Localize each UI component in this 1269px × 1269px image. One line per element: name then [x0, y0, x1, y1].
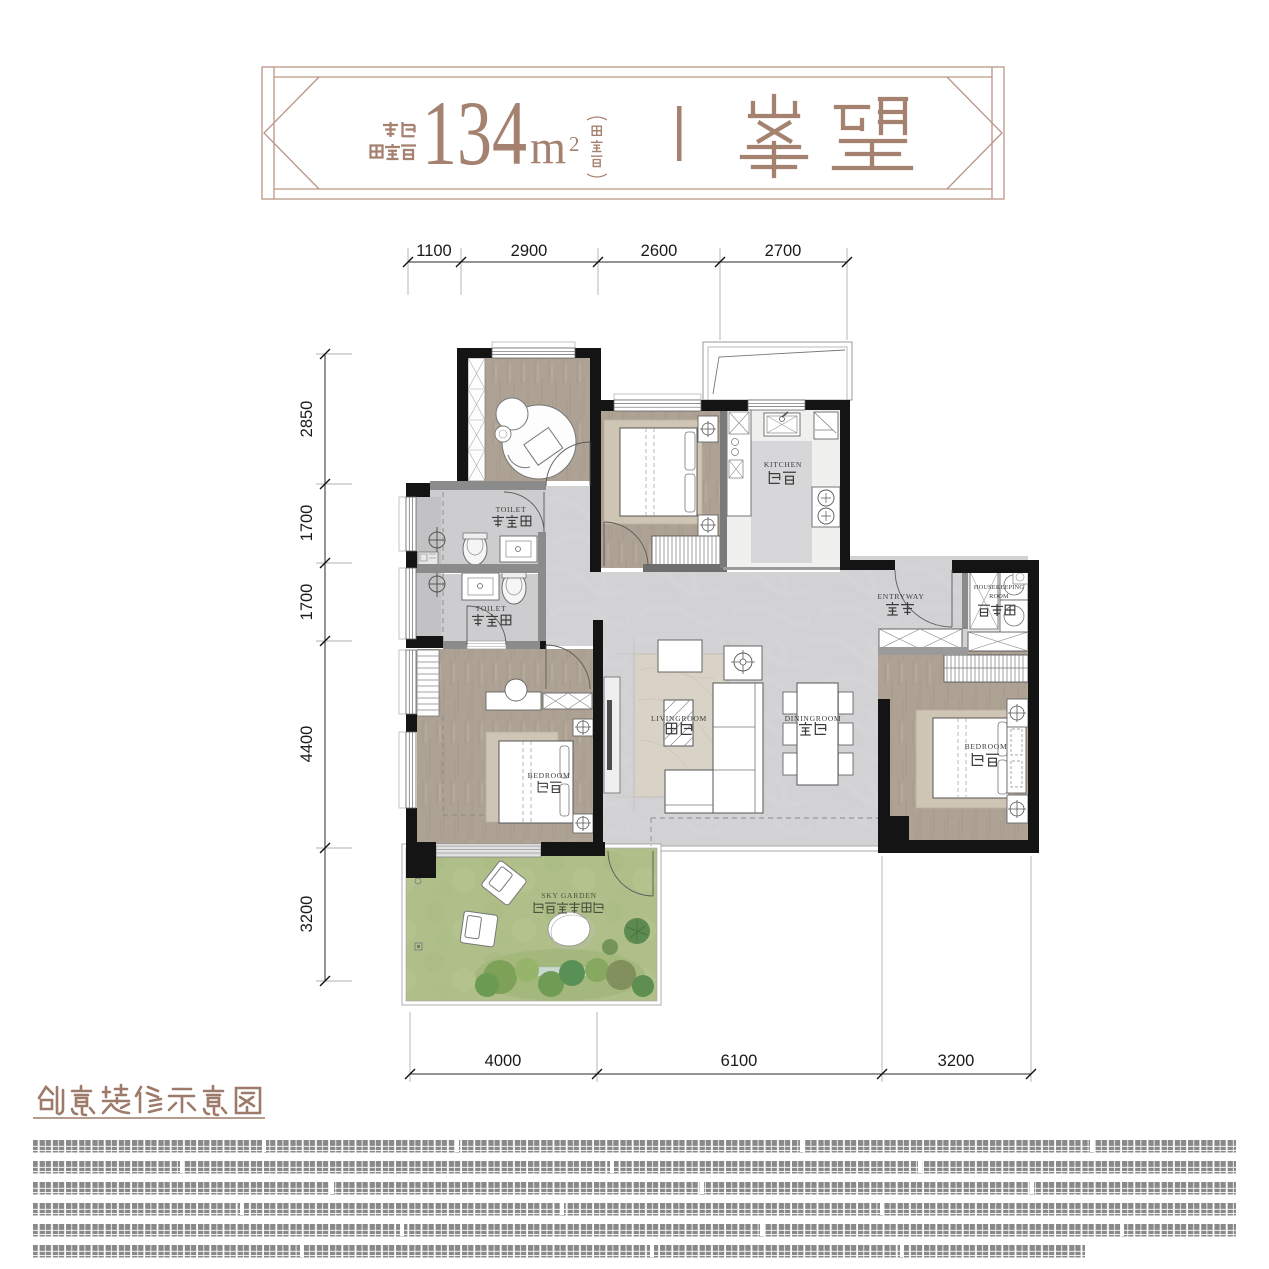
- svg-text:m: m: [530, 121, 566, 174]
- svg-text:TOILET: TOILET: [476, 604, 507, 613]
- svg-text:SKY GARDEN: SKY GARDEN: [541, 891, 596, 900]
- svg-text:2600: 2600: [641, 242, 678, 260]
- svg-text:3200: 3200: [298, 896, 316, 933]
- svg-text:TOILET: TOILET: [496, 505, 527, 514]
- svg-text:HOUSEKEEPING: HOUSEKEEPING: [974, 584, 1025, 591]
- svg-text:2850: 2850: [298, 401, 316, 438]
- svg-text:KITCHEN: KITCHEN: [764, 460, 802, 469]
- svg-text:134: 134: [422, 82, 527, 184]
- svg-text:1700: 1700: [298, 584, 316, 621]
- svg-text:LIVINGROOM: LIVINGROOM: [651, 714, 707, 723]
- svg-text:DININGROOM: DININGROOM: [785, 714, 842, 723]
- svg-text:ROOM: ROOM: [989, 593, 1009, 600]
- svg-text:1100: 1100: [416, 242, 451, 260]
- svg-text:1700: 1700: [298, 505, 316, 542]
- svg-text:3200: 3200: [938, 1052, 975, 1070]
- svg-text:4000: 4000: [485, 1052, 522, 1070]
- svg-text:2900: 2900: [511, 242, 548, 260]
- svg-text:BEDROOM: BEDROOM: [965, 742, 1008, 751]
- svg-text:2: 2: [569, 132, 580, 156]
- svg-text:2700: 2700: [765, 242, 802, 260]
- svg-text:BEDROOM: BEDROOM: [528, 771, 571, 780]
- svg-text:ENTRYWAY: ENTRYWAY: [877, 592, 924, 601]
- svg-text:6100: 6100: [721, 1052, 758, 1070]
- svg-text:4400: 4400: [298, 726, 316, 763]
